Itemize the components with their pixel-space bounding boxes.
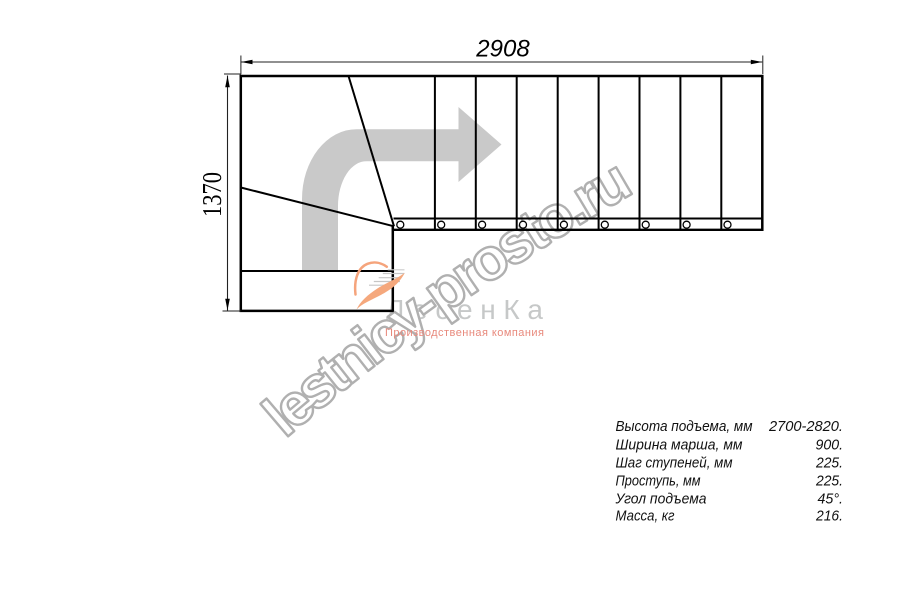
svg-text:1370: 1370 (197, 172, 227, 217)
svg-text:216.: 216. (815, 508, 843, 525)
svg-text:Проступь, мм: Проступь, мм (616, 473, 701, 490)
svg-text:2700-2820.: 2700-2820. (768, 418, 843, 435)
svg-text:Масса, кг: Масса, кг (616, 508, 676, 525)
svg-text:225.: 225. (815, 455, 843, 472)
svg-text:Угол подъема: Угол подъема (615, 491, 707, 508)
svg-text:45°.: 45°. (818, 491, 844, 508)
svg-text:Ширина марша, мм: Ширина марша, мм (616, 437, 743, 454)
svg-text:900.: 900. (816, 437, 844, 454)
svg-text:Производственная компания: Производственная компания (385, 327, 544, 339)
svg-text:Высота подъема, мм: Высота подъема, мм (616, 418, 753, 435)
svg-text:2908: 2908 (475, 36, 530, 63)
svg-text:225.: 225. (815, 473, 843, 490)
svg-text:Шаг ступеней, мм: Шаг ступеней, мм (616, 455, 733, 472)
